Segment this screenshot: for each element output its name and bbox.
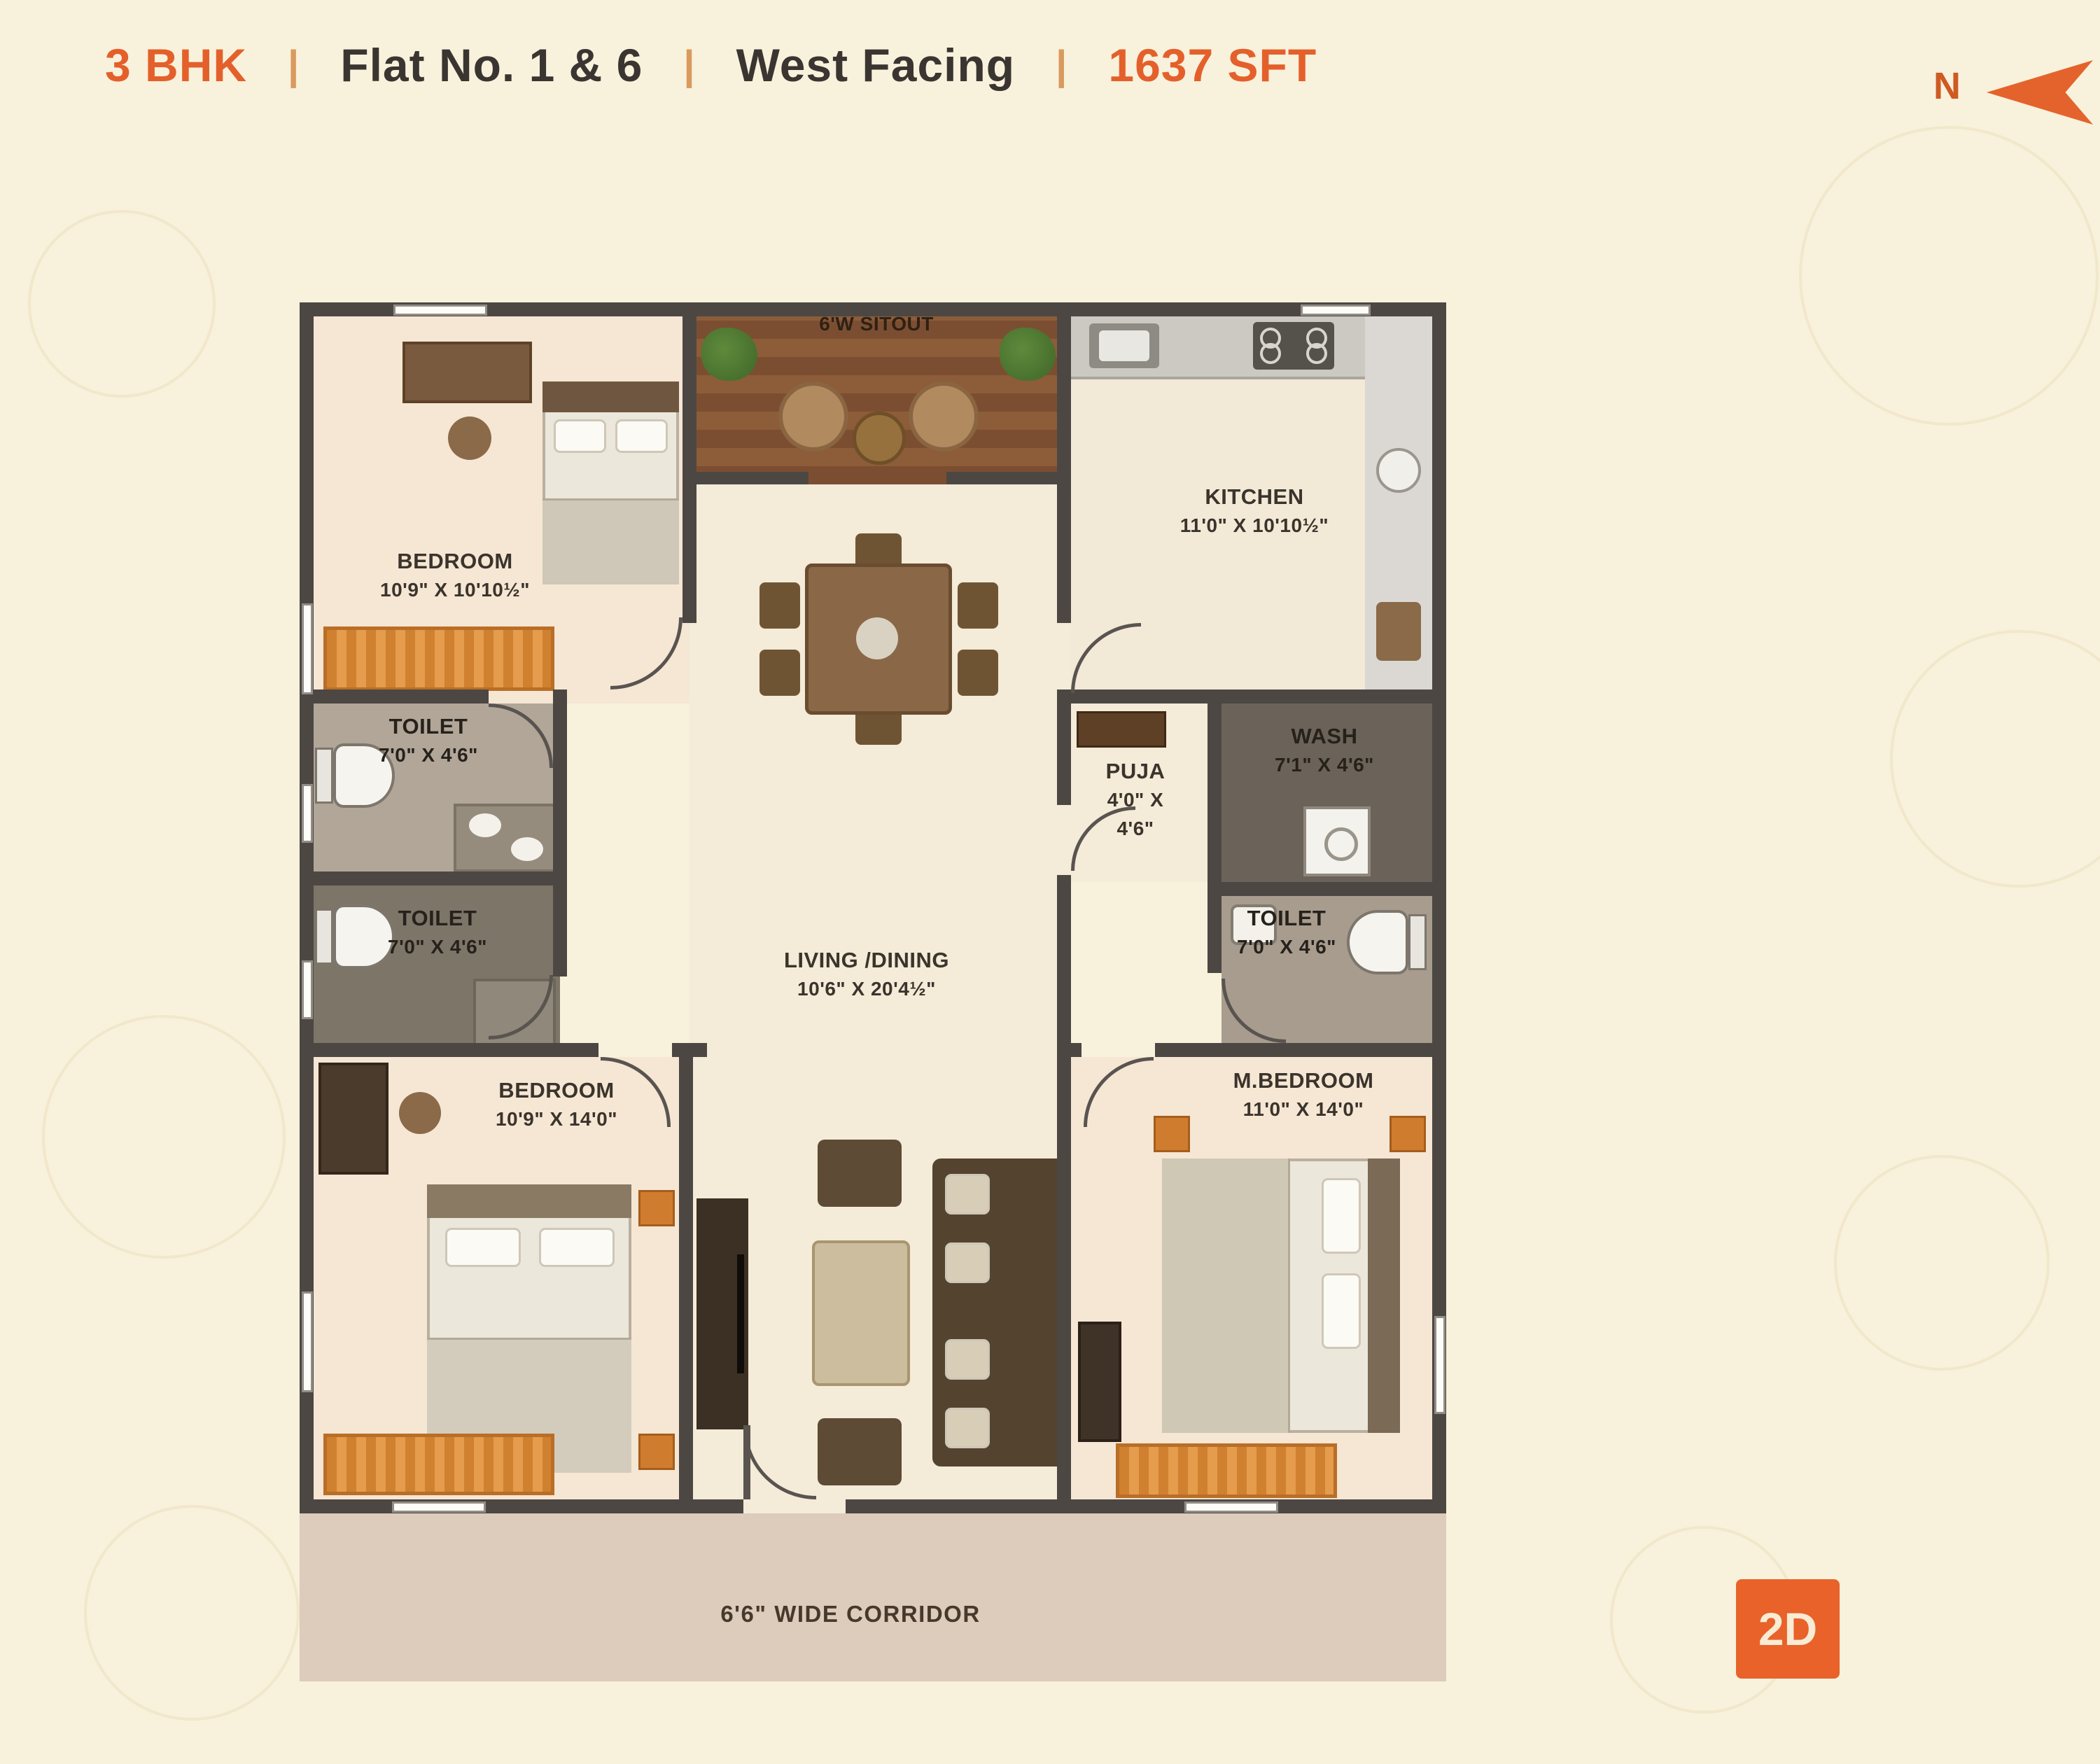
window xyxy=(1184,1501,1278,1513)
pillow xyxy=(445,1228,521,1267)
room-name: BEDROOM xyxy=(498,1078,614,1102)
room-dims: 11'0" X 10'10½" xyxy=(1180,514,1329,536)
room-name: PUJA xyxy=(1106,759,1165,783)
window xyxy=(302,784,313,843)
entrance-opening xyxy=(743,1499,846,1513)
machine-door-icon xyxy=(1324,827,1358,861)
window xyxy=(392,1501,486,1513)
wall xyxy=(679,1057,693,1499)
wall xyxy=(682,302,696,623)
wall xyxy=(1221,882,1446,896)
study-desk xyxy=(318,1063,388,1175)
window xyxy=(393,304,487,316)
bed-headboard xyxy=(427,1184,631,1218)
nightstand xyxy=(1154,1116,1190,1152)
coffee-table xyxy=(812,1240,910,1386)
wall xyxy=(300,871,560,885)
plant-icon xyxy=(701,328,757,381)
wall xyxy=(1057,1057,1071,1499)
desk-chair xyxy=(399,1092,441,1134)
wardrobe xyxy=(1078,1322,1121,1442)
wall xyxy=(553,689,567,976)
corridor-label: 6'6" WIDE CORRIDOR xyxy=(720,1599,980,1630)
table-centerpiece xyxy=(856,617,898,659)
dining-chair xyxy=(958,582,998,629)
cushion xyxy=(945,1339,990,1380)
room-dims: 11'0" X 14'0" xyxy=(1243,1098,1364,1120)
wash-label: WASH 7'1" X 4'6" xyxy=(1275,722,1374,779)
pillow xyxy=(539,1228,615,1267)
wall xyxy=(1207,703,1221,973)
toilet2-label: TOILET 7'0" X 4'6" xyxy=(388,904,487,961)
room-name: KITCHEN xyxy=(1205,484,1303,509)
sofa xyxy=(932,1158,1065,1466)
toilet-tank xyxy=(315,748,333,804)
floor-plan-page: 3 BHK | Flat No. 1 & 6 | West Facing | 1… xyxy=(0,0,2100,1764)
window xyxy=(302,960,313,1019)
cushion xyxy=(945,1174,990,1214)
pillow xyxy=(615,419,668,453)
washing-machine xyxy=(1303,806,1371,876)
bed-headboard xyxy=(542,381,679,412)
view-2d-badge[interactable]: 2D xyxy=(1736,1579,1840,1679)
window xyxy=(1301,304,1371,316)
room-name: M.BEDROOM xyxy=(1233,1068,1374,1093)
deck-chair xyxy=(778,381,848,451)
burner-icon xyxy=(1306,343,1327,364)
refrigerator xyxy=(1376,602,1421,661)
master-bedroom-label: M.BEDROOM 11'0" X 14'0" xyxy=(1233,1067,1374,1123)
nightstand xyxy=(1389,1116,1426,1152)
room-dims: 7'0" X 4'6" xyxy=(379,744,478,766)
bed xyxy=(542,381,679,584)
wall xyxy=(946,472,1071,484)
nightstand xyxy=(638,1190,675,1226)
deck-chair xyxy=(909,381,979,451)
toilet-bowl xyxy=(333,904,395,969)
room-dims: 10'9" X 10'10½" xyxy=(380,579,530,601)
bed-blanket xyxy=(542,498,679,584)
armchair xyxy=(818,1418,902,1485)
toilet-tank xyxy=(315,909,333,965)
puja-cabinet xyxy=(1077,711,1166,748)
pantry-sink xyxy=(1376,448,1421,493)
bed-blanket xyxy=(1162,1158,1290,1433)
bedroom2-label: BEDROOM 10'9" X 14'0" xyxy=(496,1077,617,1133)
room-name: WASH xyxy=(1291,724,1357,748)
rug xyxy=(323,1434,554,1495)
room-dims: 10'9" X 14'0" xyxy=(496,1108,617,1130)
room-name: TOILET xyxy=(389,714,468,738)
wall xyxy=(1057,302,1071,623)
sink-basin xyxy=(1099,330,1149,361)
living-dining-label: LIVING /DINING 10'6" X 20'4½" xyxy=(784,946,949,1003)
wall xyxy=(300,1043,598,1057)
plant-icon xyxy=(1000,328,1056,381)
room-dims: 7'0" X 4'6" xyxy=(388,936,487,958)
wall xyxy=(1155,1043,1446,1057)
entrance-door-leaf xyxy=(743,1425,750,1499)
corridor-area xyxy=(300,1506,1446,1681)
pillow xyxy=(554,419,606,453)
tv-unit xyxy=(696,1198,748,1429)
wall xyxy=(300,689,489,703)
wall xyxy=(689,472,808,484)
bed xyxy=(427,1184,631,1473)
kitchen-label: KITCHEN 11'0" X 10'10½" xyxy=(1180,483,1329,540)
room-dims: 10'6" X 20'4½" xyxy=(797,978,936,1000)
room-name: TOILET xyxy=(1247,906,1326,930)
wall xyxy=(1057,1043,1081,1057)
pillow xyxy=(1322,1273,1361,1349)
stove xyxy=(1253,322,1334,370)
rug xyxy=(323,626,554,691)
room-dims: 7'0" X 4'6" xyxy=(1237,936,1336,958)
toilet3-label: TOILET 7'0" X 4'6" xyxy=(1237,904,1336,961)
rug xyxy=(1116,1443,1337,1498)
window xyxy=(302,603,313,694)
tv-icon xyxy=(737,1254,744,1373)
room-name: TOILET xyxy=(398,906,477,930)
puja-label: PUJA 4'0" X 4'6" xyxy=(1106,757,1165,842)
burner-icon xyxy=(1260,343,1281,364)
dresser xyxy=(402,342,532,403)
window xyxy=(302,1291,313,1392)
toilet-tank xyxy=(1408,914,1427,970)
dining-chair xyxy=(759,650,800,696)
cushion xyxy=(945,1242,990,1283)
deck-table xyxy=(853,412,906,465)
room-name: BEDROOM xyxy=(397,549,512,573)
room-name: LIVING /DINING xyxy=(784,948,949,972)
dining-chair xyxy=(958,650,998,696)
dining-chair xyxy=(759,582,800,629)
nightstand xyxy=(638,1434,675,1470)
bedroom1-label: BEDROOM 10'9" X 10'10½" xyxy=(380,547,530,604)
toilet-bowl xyxy=(1347,910,1408,974)
bed xyxy=(1162,1158,1400,1433)
vanity xyxy=(454,804,556,872)
wall xyxy=(1057,703,1071,805)
armchair xyxy=(818,1140,902,1207)
room-dims: 7'1" X 4'6" xyxy=(1275,754,1374,776)
room-dims: 4'6" xyxy=(1116,818,1154,839)
stool xyxy=(448,416,491,460)
kitchen-sink xyxy=(1089,323,1159,368)
window xyxy=(1434,1316,1445,1414)
wash-basin xyxy=(469,813,501,837)
room-dims: 4'0" X xyxy=(1107,789,1164,811)
floor-plan: 6'6" WIDE CORRIDOR 6'W SITOUT xyxy=(0,0,2100,1764)
cushion xyxy=(945,1408,990,1448)
toilet1-label: TOILET 7'0" X 4'6" xyxy=(379,713,478,769)
wash-basin xyxy=(511,837,543,861)
dining-table xyxy=(805,563,952,715)
wall xyxy=(672,1043,707,1057)
wall xyxy=(1057,875,1071,1057)
pillow xyxy=(1322,1178,1361,1254)
bed-headboard xyxy=(1368,1158,1400,1433)
